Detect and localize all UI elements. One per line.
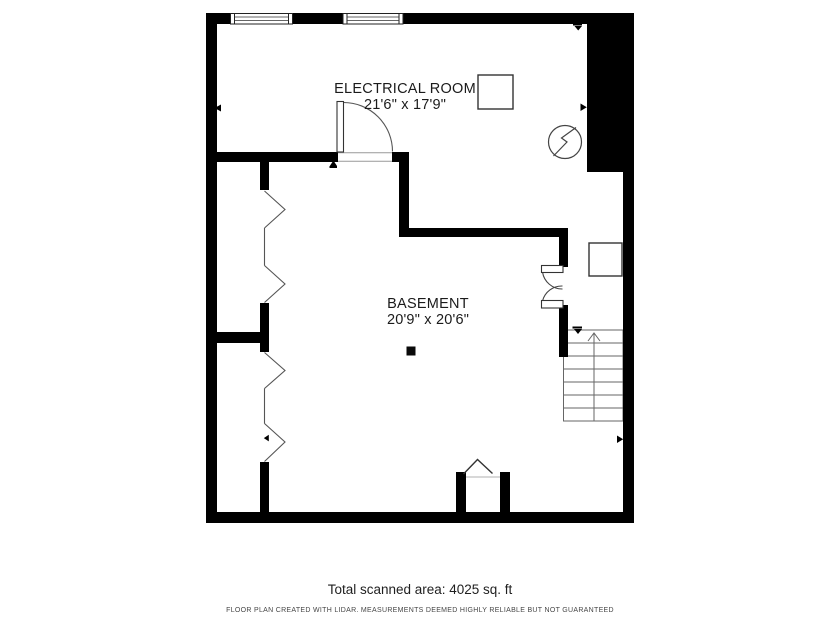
electrical-room-label: ELECTRICAL ROOM [334,81,476,97]
double-door-leaf-bottom [542,301,564,309]
appliance-square-electrical [478,75,513,109]
folding-door-icon-upper [265,191,286,303]
disclaimer-text: FLOOR PLAN CREATED WITH LIDAR. MEASUREME… [226,607,614,614]
double-door-icon [542,266,564,309]
column-icon [407,347,416,356]
marker-arrow-closet [264,435,269,442]
window-icon-2 [343,14,403,25]
wall-electrical-room-left [206,152,338,162]
appliance-square-utility [589,243,622,276]
wall-above-double-door [559,228,568,267]
double-door-arc-bottom [543,286,563,301]
marker-bar-door [330,166,338,168]
entry-door-icon [464,460,501,478]
wall-closet-divider [206,332,269,343]
wall-entry-stub-left [456,472,466,512]
basement-dimensions: 20'9" x 20'6" [387,312,469,328]
stairs [564,330,624,421]
marker-arrow-right-wall [617,436,623,444]
total-scanned-area-text: Total scanned area: 4025 sq. ft [328,582,513,597]
wall-solid-block-top-right [587,13,634,172]
marker-bar-top [573,24,582,26]
wall-entry-stub-right [500,472,510,512]
entry-chevron [464,460,493,475]
marker-arrow-top [575,26,583,31]
folding-door-icon-lower [265,353,286,462]
wall-outer-left [206,13,217,523]
double-door-leaf-top [542,266,564,273]
door-leaf [337,102,344,153]
wall-outer-bottom [206,512,634,523]
basement-label: BASEMENT [387,296,469,312]
marker-arrow-block-edge [581,104,587,112]
electrical-room-dimensions: 21'6" x 17'9" [364,97,446,113]
wall-closet-stub-b [260,303,269,352]
wall-basement-top [399,228,568,237]
electrical-panel-icon [549,126,582,159]
wall-step-vertical [399,152,409,237]
window-icon-1 [231,14,293,25]
floor-plan-page: ELECTRICAL ROOM 21'6" x 17'9" BASEMENT 2… [0,0,840,630]
wall-closet-stub-a [260,152,269,190]
marker-bar-stairs [573,327,583,329]
wall-below-double-door [559,305,568,357]
wall-closet-stub-c [260,462,269,512]
